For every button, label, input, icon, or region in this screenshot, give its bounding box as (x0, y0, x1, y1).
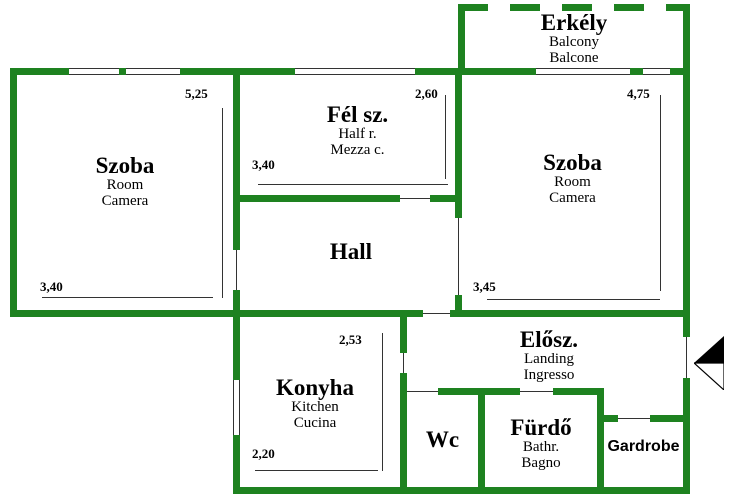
room-left-window-mullion (119, 68, 126, 75)
half-room-sub1: Half r. (250, 127, 465, 143)
dim-line-room-left-height (222, 108, 223, 298)
kitchen-title: Konyha (240, 376, 390, 400)
wardrobe-title: Gardrobe (604, 439, 683, 456)
kitchen-left-wall-upper (233, 310, 240, 380)
room-label-bathroom: Fürdő Bathr. Bagno (485, 416, 597, 472)
balcony-sub2: Balcone (458, 51, 690, 67)
balcony-window-mullion (630, 68, 643, 75)
half-room-title: Fél sz. (250, 103, 465, 127)
room-label-kitchen: Konyha Kitchen Cucina (240, 376, 390, 432)
kitchen-divider-upper (400, 310, 407, 353)
room-label-room-left: Szoba Room Camera (17, 154, 233, 210)
mid-wall-right-segment (450, 310, 690, 317)
mid-wall-left-segment (10, 310, 423, 317)
wc-bath-divider (478, 388, 485, 494)
room-label-balcony: Erkély Balcony Balcone (458, 11, 690, 67)
dim-room-right-height: 4,75 (627, 86, 650, 102)
right-wall-lower (683, 378, 690, 494)
room-left-sub1: Room (17, 178, 233, 194)
balcony-title: Erkély (458, 11, 690, 35)
dim-room-left-width: 3,40 (40, 279, 63, 295)
kitchen-divider-lower (400, 373, 407, 494)
half-room-door-opening (400, 198, 430, 199)
half-room-divider-left (233, 195, 400, 202)
dim-kitchen-width: 2,20 (252, 446, 275, 462)
floor-plan: Erkély Balcony Balcone Szoba Room Camera… (0, 0, 730, 503)
kitchen-door-opening (403, 353, 404, 373)
room-left-title: Szoba (17, 154, 233, 178)
wc-door-opening (407, 391, 438, 392)
dim-line-room-left-width (42, 297, 213, 298)
hall-landing-door-opening (423, 313, 450, 314)
room-right-title: Szoba (462, 151, 683, 175)
dim-line-room-right-width (487, 299, 660, 300)
room-label-wc: Wc (407, 428, 478, 452)
room-right-divider-lower (455, 295, 462, 317)
dim-room-left-height: 5,25 (185, 86, 208, 102)
room-left-door-opening (236, 250, 237, 290)
half-room-window (295, 68, 415, 75)
room-right-sub1: Room (462, 175, 683, 191)
top-wall-segment-4 (670, 68, 690, 75)
kitchen-sub1: Kitchen (240, 400, 390, 416)
wardrobe-wall-left (597, 415, 618, 422)
wardrobe-wall-right (650, 415, 690, 422)
balcony-sub1: Balcony (458, 35, 690, 51)
room-label-wardrobe: Gardrobe (604, 439, 683, 456)
room-label-hall: Hall (240, 240, 462, 264)
room-right-sub2: Camera (462, 191, 683, 207)
dim-line-half-room-height (445, 95, 446, 179)
bathroom-sub1: Bathr. (485, 440, 597, 456)
kitchen-sub2: Cucina (240, 416, 390, 432)
landing-sub1: Landing (407, 352, 691, 368)
half-room-sub2: Mezza c. (250, 143, 465, 159)
dim-line-kitchen-height (382, 333, 383, 471)
kitchen-left-wall-lower (233, 435, 240, 494)
room-label-room-right: Szoba Room Camera (462, 151, 683, 207)
bottom-wall (233, 487, 690, 494)
wardrobe-door-opening (618, 418, 650, 419)
dim-half-room-width: 3,40 (252, 157, 275, 173)
dim-line-kitchen-width (255, 470, 378, 471)
left-wall (10, 68, 17, 317)
room-left-divider-upper (233, 68, 240, 250)
top-wall-segment-1 (10, 68, 69, 75)
bathroom-title: Fürdő (485, 416, 597, 440)
landing-sub2: Ingresso (407, 368, 691, 384)
room-left-divider-lower (233, 290, 240, 317)
room-label-half-room: Fél sz. Half r. Mezza c. (250, 103, 465, 159)
landing-title: Elősz. (407, 328, 691, 352)
dim-room-right-width: 3,45 (473, 279, 496, 295)
balcony-door-window (536, 68, 630, 75)
entrance-arrow-icon (694, 336, 724, 390)
bath-wardrobe-divider (597, 388, 604, 494)
room-label-landing: Elősz. Landing Ingresso (407, 328, 691, 384)
dim-half-room-height: 2,60 (415, 86, 438, 102)
top-wall-segment-3 (415, 68, 536, 75)
bathroom-door-opening (520, 391, 553, 392)
dim-kitchen-height: 2,53 (339, 332, 362, 348)
bathroom-sub2: Bagno (485, 456, 597, 472)
dim-line-room-right-height (660, 95, 661, 291)
balcony-side-window (643, 68, 670, 75)
wc-title: Wc (407, 428, 478, 452)
room-left-sub2: Camera (17, 194, 233, 210)
dim-line-half-room-width (258, 184, 448, 185)
kitchen-window (233, 380, 240, 435)
hall-title: Hall (240, 240, 462, 264)
